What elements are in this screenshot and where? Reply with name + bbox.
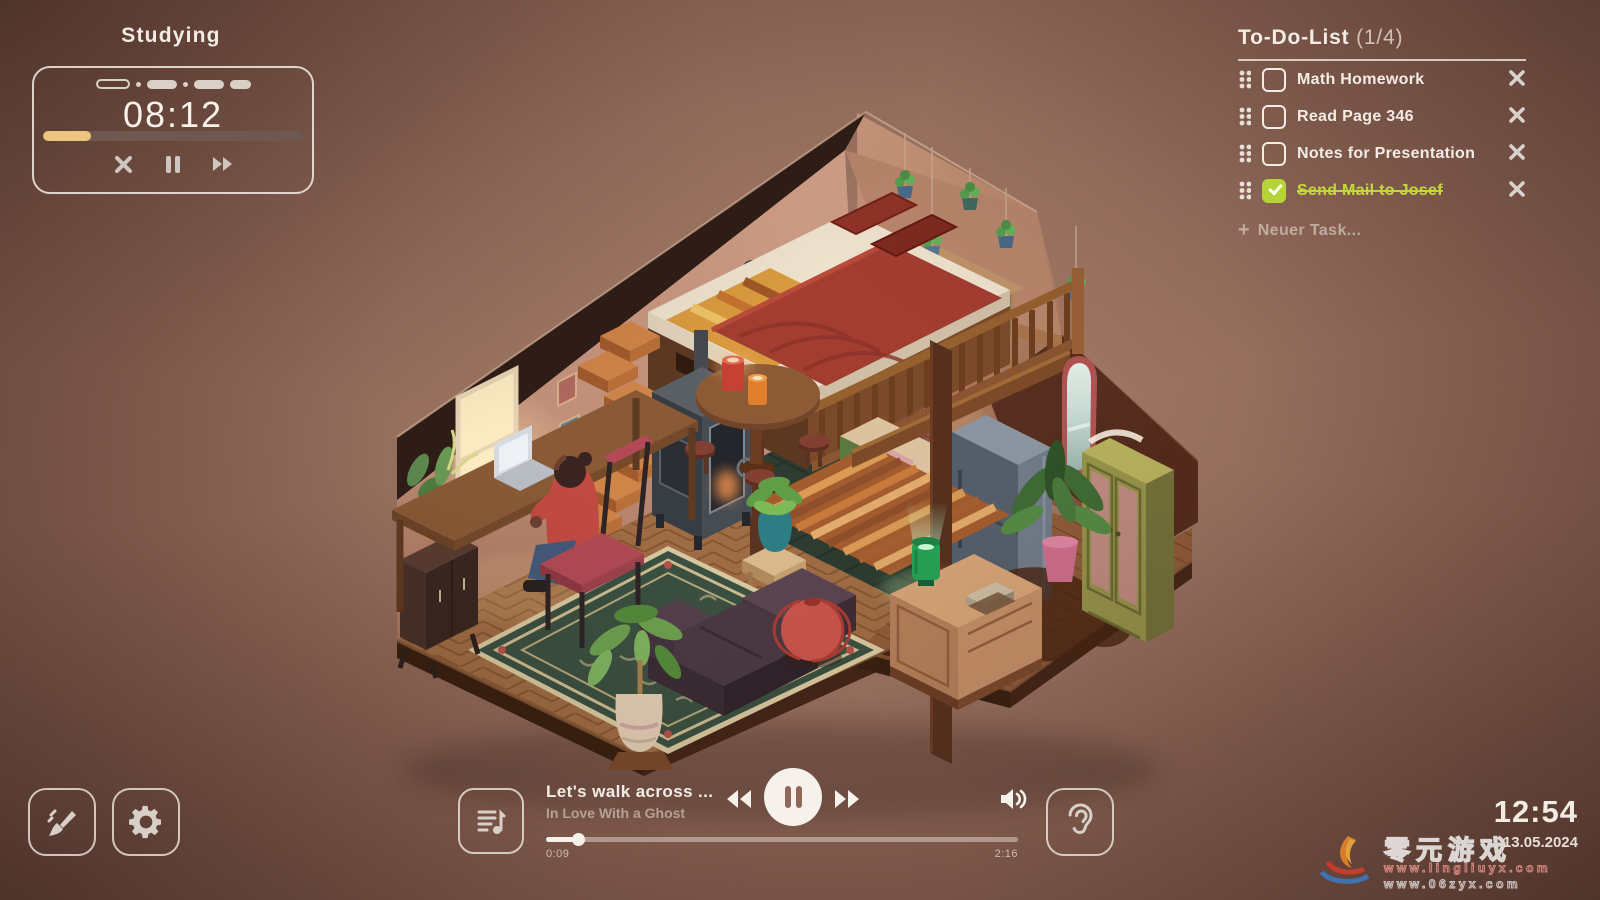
segment-pill [230,80,251,89]
segment-pill-active [96,79,130,89]
music-player: Let's walk across ... In Love With a Gho… [458,782,1118,872]
ambient-sounds-button[interactable] [1046,788,1114,856]
fast-forward-icon [832,788,862,810]
segment-pill [194,80,224,89]
todo-panel: To-Do-List (1/4) Math Homework Read Page… [1238,26,1528,242]
todo-title-text: To-Do-List [1238,26,1349,49]
segment-pill [147,80,177,89]
todo-item-label: Math Homework [1297,71,1424,89]
session-skip-button[interactable] [211,152,235,176]
session-segment-indicator [34,79,312,89]
todo-checkbox[interactable] [1262,68,1286,92]
session-pause-button[interactable] [161,152,185,176]
clock-widget: 12:54 13.05.2024 [1494,794,1578,851]
rewind-icon [724,788,754,810]
playlist-note-icon [473,803,509,839]
todo-item: Send Mail to Josef [1238,172,1528,209]
song-progress-knob[interactable] [572,833,585,846]
todo-item-label: Notes for Presentation [1297,145,1475,163]
play-pause-button[interactable] [764,768,822,826]
todo-item: Math Homework [1238,61,1528,98]
game-screen: Studying 08:12 To-Do-List (1/4) [0,0,1600,900]
session-cancel-button[interactable] [111,152,135,176]
todo-count: (1/4) [1356,26,1403,49]
todo-item-label: Send Mail to Josef [1297,182,1443,200]
todo-checkbox-checked[interactable] [1262,179,1286,203]
delete-cross-icon [1508,69,1526,87]
todo-delete-button[interactable] [1508,69,1526,87]
todo-item-label: Read Page 346 [1297,108,1414,126]
todo-delete-button[interactable] [1508,143,1526,161]
delete-cross-icon [1508,143,1526,161]
song-duration: 2:16 [995,848,1018,860]
settings-button[interactable] [112,788,180,856]
drag-handle-icon[interactable] [1239,144,1251,163]
song-progress-fill [546,837,579,842]
clock-time: 12:54 [1494,794,1578,830]
pumpkin-pouf [774,598,850,668]
timer-progress-fill [43,131,91,141]
track-artist: In Love With a Ghost [546,805,685,821]
todo-item: Notes for Presentation [1238,135,1528,172]
session-timer-card: 08:12 [32,66,314,194]
todo-title: To-Do-List (1/4) [1238,26,1528,50]
pause-icon [785,786,791,808]
segment-dot [136,82,141,87]
session-controls [34,152,312,176]
delete-cross-icon [1508,180,1526,198]
song-elapsed: 0:09 [546,848,569,860]
session-progress-track [43,131,303,141]
delete-cross-icon [1508,106,1526,124]
pause-icon [175,156,180,173]
todo-delete-button[interactable] [1508,106,1526,124]
volume-button[interactable] [998,786,1030,812]
ear-icon [1062,802,1098,842]
pause-icon [166,156,171,173]
segment-dot [183,82,188,87]
session-activity-label: Studying [32,24,310,48]
paintbrush-icon [43,803,81,841]
session-timer-value: 08:12 [34,94,312,136]
skip-button[interactable] [832,788,862,810]
close-icon [114,155,133,174]
track-title: Let's walk across ... [546,782,713,802]
plus-icon: + [1238,219,1250,242]
drag-handle-icon[interactable] [1239,70,1251,89]
rewind-button[interactable] [724,788,754,810]
fast-forward-icon [211,155,235,173]
todo-delete-button[interactable] [1508,180,1526,198]
drag-handle-icon[interactable] [1239,107,1251,126]
song-progress-track[interactable] [546,837,1018,842]
todo-add-task-button[interactable]: + Neuer Task... [1238,219,1528,242]
wardrobe [1082,432,1174,642]
todo-checkbox[interactable] [1262,142,1286,166]
todo-checkbox[interactable] [1262,105,1286,129]
decorate-button[interactable] [28,788,96,856]
pause-icon [796,786,802,808]
volume-icon [998,786,1030,812]
gear-icon [126,802,166,842]
playlist-button[interactable] [458,788,524,854]
drag-handle-icon[interactable] [1239,181,1251,200]
clock-date: 13.05.2024 [1494,834,1578,851]
todo-add-label: Neuer Task... [1258,222,1362,240]
todo-item: Read Page 346 [1238,98,1528,135]
